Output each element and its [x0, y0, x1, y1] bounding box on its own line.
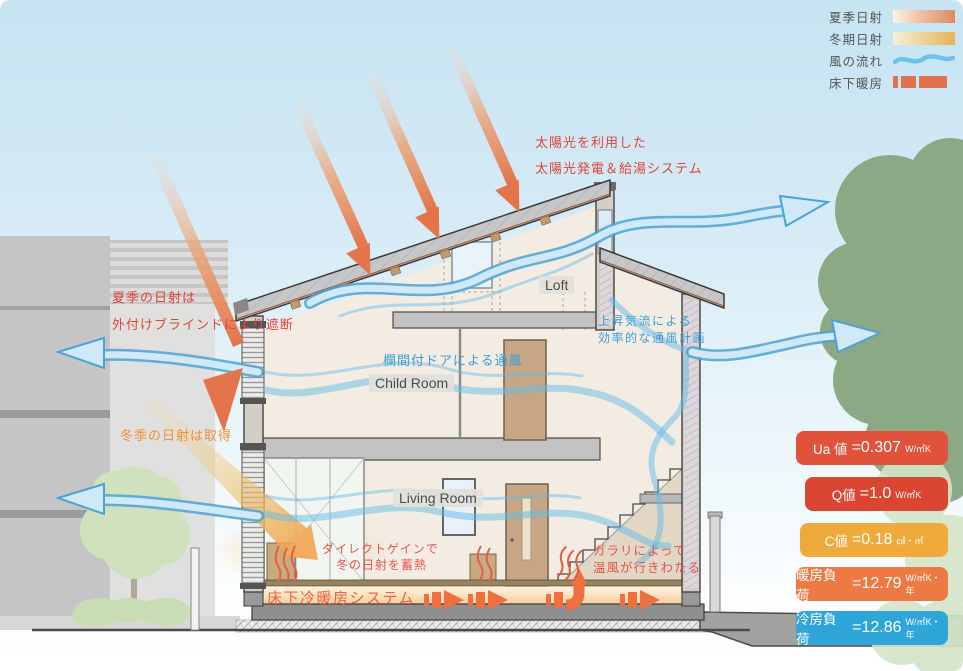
summer-radiation-swatch [893, 10, 955, 23]
room-label-living-room: Living Room [393, 489, 483, 507]
metric-q-value: Q値 =1.0 W/㎡K [805, 477, 948, 511]
loft-floor [393, 312, 598, 328]
annotation-louver: ガラリによって 温風が行きわたる [593, 543, 701, 577]
downspout [708, 512, 722, 612]
legend-row-floorheat: 床下暖房 [829, 74, 955, 90]
room-label-loft: Loft [539, 276, 574, 294]
annotation-winter-gain: 冬季の日射は取得 [120, 423, 232, 449]
middle-window [443, 479, 475, 535]
first-floor-slab [263, 580, 682, 586]
annotation-updraft: 上昇気流による 効率的な通風計画 [598, 313, 706, 347]
annotation-summer-shade: 夏季の日射は 外付けブラインドにより遮断 [112, 284, 294, 338]
annotation-transom-vent: 欄間付ドアによる通風 [383, 348, 523, 374]
legend-row-winter: 冬期日射 [829, 30, 955, 46]
metric-c-value: C値 =0.18 ㎠・㎡ [800, 523, 948, 557]
annotation-underfloor-system: 床下冷暖房システム [267, 590, 415, 608]
first-floor-door [506, 484, 548, 586]
left-exterior-wall [240, 316, 266, 592]
metric-heating-load: 暖房負荷 =12.79 W/㎡K・年 [796, 567, 948, 601]
metric-ua-value: Ua 値 =0.307 W/㎡K [796, 431, 948, 465]
room-label-child-room: Child Room [369, 374, 454, 392]
stair-rail [640, 494, 686, 503]
floor-heating-swatch [893, 76, 955, 89]
left-bushes [72, 598, 191, 626]
annotation-direct-gain: ダイレクトゲインで 冬の日射を蓄熱 [322, 541, 439, 573]
legend-row-wind: 風の流れ [829, 52, 955, 68]
annotation-solar-system: 太陽光を利用した 太陽光発電＆給湯システム [535, 130, 703, 182]
fence-pole [191, 548, 199, 630]
legend-row-summer: 夏季日射 [829, 8, 955, 24]
legend: 夏季日射 冬期日射 風の流れ 床下暖房 [829, 8, 955, 90]
metric-cooling-load: 冷房負荷 =12.86 W/㎡K・年 [796, 611, 948, 645]
winter-radiation-swatch [893, 32, 955, 45]
passive-house-section-diagram: 太陽光を利用した 太陽光発電＆給湯システム 夏季の日射は 外付けブラインドにより… [0, 0, 963, 671]
wind-flow-swatch [893, 54, 955, 67]
second-floor [263, 438, 600, 460]
